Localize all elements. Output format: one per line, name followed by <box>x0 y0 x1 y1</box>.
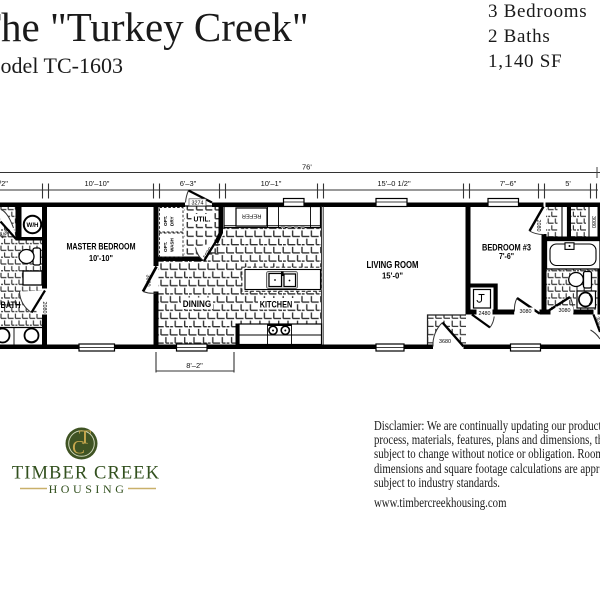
svg-text:HOUSING: HOUSING <box>49 482 128 496</box>
svg-text:10'-10": 10'-10" <box>89 253 113 263</box>
svg-text:2080: 2080 <box>41 302 47 314</box>
svg-text:C: C <box>72 438 85 459</box>
svg-text:2480: 2480 <box>479 311 491 317</box>
svg-text:MASTER BEDROOM: MASTER BEDROOM <box>67 242 136 253</box>
svg-text:WASH: WASH <box>170 238 175 252</box>
svg-text:15'–0 1/2": 15'–0 1/2" <box>377 179 411 188</box>
svg-text:3080: 3080 <box>145 275 151 287</box>
svg-text:6'–3": 6'–3" <box>180 179 197 188</box>
svg-text:UTIL.: UTIL. <box>194 217 211 224</box>
svg-text:3274: 3274 <box>192 201 204 207</box>
svg-text:DRY: DRY <box>170 216 175 226</box>
svg-text:DINING: DINING <box>183 299 212 310</box>
svg-text:10'–10": 10'–10" <box>85 179 110 188</box>
svg-text:8'–2": 8'–2" <box>186 361 203 370</box>
svg-text:W/H: W/H <box>26 222 39 229</box>
svg-text:OPT.: OPT. <box>163 242 168 252</box>
svg-text:3080: 3080 <box>594 316 600 329</box>
svg-text:3680: 3680 <box>439 339 451 345</box>
svg-text:3080: 3080 <box>520 309 532 315</box>
svg-text:5': 5' <box>565 179 571 188</box>
svg-text:BEDROOM #3: BEDROOM #3 <box>482 243 531 253</box>
svg-text:7'-6": 7'-6" <box>499 252 514 261</box>
svg-text:2080: 2080 <box>535 220 541 232</box>
svg-text:7'–6": 7'–6" <box>500 179 517 188</box>
svg-text:REFER: REFER <box>242 213 262 219</box>
svg-text:KITCHEN: KITCHEN <box>260 300 293 311</box>
svg-text:10'–1": 10'–1" <box>261 179 282 188</box>
svg-text:OPT.: OPT. <box>163 216 168 226</box>
svg-text:LIVING ROOM: LIVING ROOM <box>367 260 419 271</box>
svg-text:BATH: BATH <box>1 300 21 311</box>
svg-text:3080: 3080 <box>590 216 596 228</box>
svg-text:15'-0": 15'-0" <box>382 271 403 281</box>
svg-text:3080: 3080 <box>559 308 571 314</box>
svg-text:/2": /2" <box>0 179 8 188</box>
svg-text:TIMBER CREEK: TIMBER CREEK <box>12 464 160 484</box>
svg-text:76': 76' <box>302 163 312 172</box>
